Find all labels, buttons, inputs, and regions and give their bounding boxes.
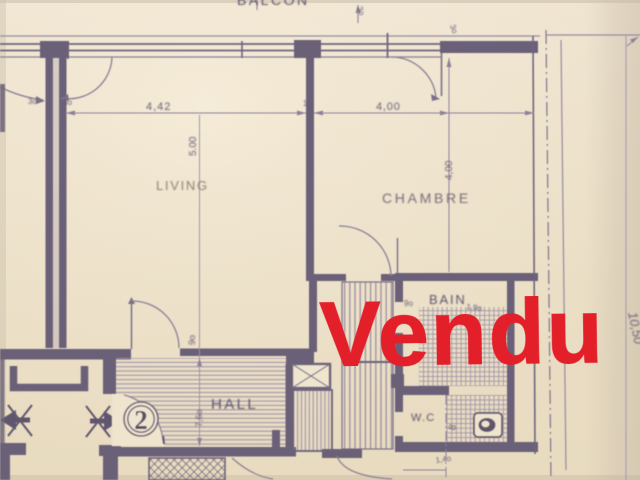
svg-text:HALL: HALL <box>211 396 258 413</box>
svg-text:5.00: 5.00 <box>188 136 199 156</box>
svg-text:3o: 3o <box>28 97 37 106</box>
svg-text:W.C: W.C <box>411 412 435 424</box>
svg-text:1o: 1o <box>303 99 312 108</box>
svg-text:Vendu: Vendu <box>319 280 605 386</box>
svg-text:4,00: 4,00 <box>376 101 401 113</box>
svg-text:3o: 3o <box>63 98 72 107</box>
svg-text:9o: 9o <box>187 335 197 345</box>
svg-text:CHAMBRE: CHAMBRE <box>382 190 471 206</box>
svg-text:2: 2 <box>134 405 148 435</box>
svg-text:7,6o: 7,6o <box>194 409 204 427</box>
svg-text:4,00: 4,00 <box>444 160 455 180</box>
svg-text:LIVING: LIVING <box>156 178 209 193</box>
svg-text:4,42: 4,42 <box>146 101 171 113</box>
svg-text:BALCON: BALCON <box>237 0 310 8</box>
